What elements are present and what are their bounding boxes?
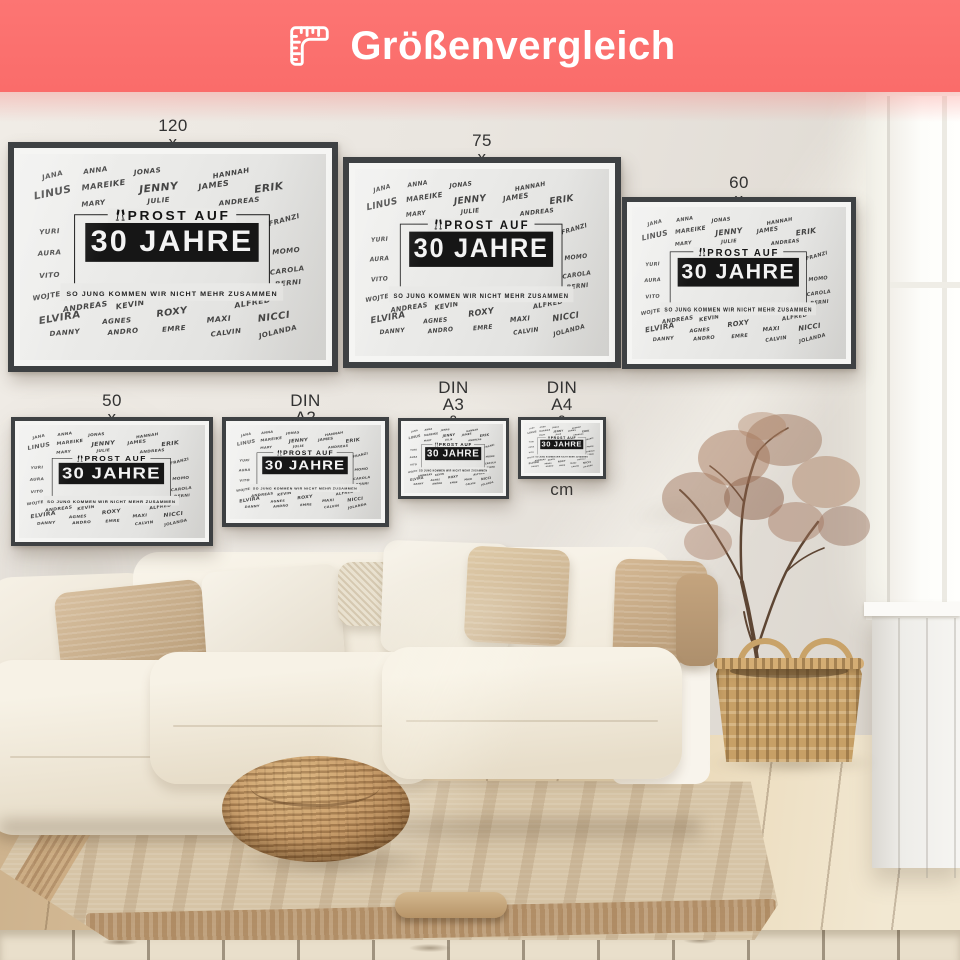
guest-name: ANDRO [428, 325, 454, 334]
poster-title: 30 JAHRE [265, 458, 345, 473]
guest-name: FRANZI [585, 437, 593, 441]
guest-name: CAROLA [586, 450, 595, 453]
guest-name: MOMO [485, 455, 494, 459]
guest-name: CAROLA [353, 475, 371, 481]
guest-name: CALVIN [210, 326, 242, 338]
guest-name: YURI [31, 465, 44, 470]
guest-name: JAMES [502, 192, 529, 204]
guest-name: BERNI [355, 482, 368, 487]
guest-name: AURA [370, 255, 390, 263]
guest-name: ANDRO [546, 465, 554, 468]
guest-name: MARY [674, 240, 691, 247]
guest-name: JONAS [88, 432, 105, 438]
guest-name: ANNA [261, 430, 274, 435]
guest-name: EMRE [731, 332, 748, 339]
guest-name: ELVIRA [370, 310, 406, 326]
guest-name: JOLANDA [258, 323, 298, 340]
guest-name: HANNAH [572, 426, 582, 429]
size-comparison-graphic: Größenvergleich [0, 0, 960, 960]
guest-name: VITO [371, 275, 389, 283]
guest-name: CAROLA [485, 461, 497, 465]
guest-name: ROXY [297, 494, 313, 501]
guest-name: AURA [410, 456, 418, 459]
guest-name: AGNES [423, 316, 448, 325]
guest-name: JANA [372, 183, 391, 194]
guest-name: DANNY [50, 327, 81, 337]
guest-name: JANA [41, 169, 64, 181]
header-reflection [0, 92, 960, 122]
guest-name: YURI [646, 261, 661, 268]
guest-name: MOMO [564, 253, 588, 263]
poster-title: 30 JAHRE [542, 440, 582, 448]
guest-name: NICCI [257, 310, 291, 325]
guest-name: YURI [529, 441, 534, 443]
guest-name: ELVIRA [529, 461, 540, 465]
guest-name: DANNY [414, 482, 424, 485]
guest-names: JANAANNAJONASHANNAHLINUSMAREIKEJENNYJAME… [19, 425, 205, 538]
guest-name: JULIE [147, 196, 170, 206]
guest-name: LINUS [408, 434, 421, 440]
guest-name: JAMES [127, 439, 147, 446]
guest-name: NICCI [347, 496, 364, 503]
guest-name: ERIK [253, 180, 284, 195]
guest-name: ALFRED [234, 295, 272, 310]
guest-name: ERIK [479, 433, 489, 438]
guest-name: MAXI [762, 325, 780, 333]
guest-name: AGNES [102, 316, 132, 326]
guest-name: JOLANDA [481, 481, 494, 487]
guest-name: AURA [239, 468, 251, 472]
guest-name: BERNI [173, 493, 190, 499]
guest-name: MAREIKE [56, 438, 83, 446]
guest-name: ANNA [83, 165, 109, 176]
guest-name: EMRE [559, 464, 565, 466]
guest-name: JANA [411, 429, 418, 433]
guest-name: JENNY [715, 226, 743, 237]
guest-names: JANAANNAJONASHANNAHLINUSMAREIKEJENNYJAME… [524, 423, 600, 473]
guest-name: JENNY [91, 439, 115, 447]
poster-title-box: 30 JAHRE [409, 232, 553, 267]
guest-name: JULIE [96, 448, 110, 453]
guest-name: LINUS [236, 438, 256, 447]
guest-names: JANAANNAJONASHANNAHLINUSMAREIKEJENNYJAME… [230, 425, 381, 519]
guest-name: DANNY [653, 335, 675, 343]
poster-frame: JANAANNAJONASHANNAHLINUSMAREIKEJENNYJAME… [11, 417, 213, 546]
guest-name: ANDREAS [62, 300, 108, 315]
poster-frame: JANAANNAJONASHANNAHLINUSMAREIKEJENNYJAME… [518, 417, 606, 479]
guest-name: FRANZI [560, 222, 588, 236]
guest-name: DANNY [531, 465, 539, 467]
guest-names: JANAANNAJONASHANNAHLINUSMAREIKEJENNYJAME… [355, 169, 609, 356]
poster-art: JANAANNAJONASHANNAHLINUSMAREIKEJENNYJAME… [20, 154, 326, 360]
guest-name: ANDREAS [328, 444, 349, 449]
guest-name: KEVIN [115, 298, 145, 311]
guest-name: HANNAH [514, 181, 546, 194]
poster-art: JANAANNAJONASHANNAHLINUSMAREIKEJENNYJAME… [524, 423, 600, 473]
guest-name: CAROLA [806, 288, 831, 297]
guest-name: MAREIKE [539, 429, 550, 433]
guest-name: DANNY [245, 504, 260, 509]
guest-name: ROXY [448, 475, 459, 480]
poster-subtitle: SO JUNG KOMMEN WIR NICHT MEHR ZUSAMMEN [47, 500, 175, 504]
guest-name: ANDRO [108, 326, 140, 336]
guest-name: AURA [528, 446, 534, 448]
guest-name: CALVIN [571, 465, 579, 468]
guest-name: LINUS [365, 195, 398, 212]
guest-name: DANNY [37, 520, 56, 526]
guest-name: LINUS [26, 441, 50, 451]
guest-name: EMRE [450, 481, 458, 484]
guest-name: JAMES [318, 436, 334, 442]
guest-name: JONAS [449, 180, 472, 189]
poster-title: 30 JAHRE [62, 464, 161, 482]
guest-name: ELVIRA [38, 310, 82, 328]
poster-heading: PROST AUF [84, 455, 147, 463]
guest-name: VITO [31, 489, 44, 494]
guest-name: ANDREAS [218, 195, 260, 207]
guest-name: ROXY [558, 460, 566, 464]
guest-name: MARY [539, 434, 545, 436]
poster-emblem: PROST AUF 30 JAHRE SO JUNG KOMMEN WIR NI… [400, 224, 563, 295]
poster-heading: PROST AUF [551, 436, 577, 440]
poster-title-box: 30 JAHRE [425, 447, 481, 460]
guest-name: ANDRO [273, 504, 289, 509]
guest-names: JANAANNAJONASHANNAHLINUSMAREIKEJENNYJAME… [404, 424, 503, 493]
guest-name: MAXI [206, 314, 231, 325]
guest-name: JAMES [568, 429, 576, 432]
guest-name: ELVIRA [30, 510, 57, 520]
poster-emblem: PROST AUF 30 JAHRE SO JUNG KOMMEN WIR NI… [52, 458, 171, 501]
guest-name: KEVIN [277, 491, 292, 497]
guest-name: ANDREAS [770, 238, 799, 247]
guest-name: ERIK [161, 439, 180, 447]
guest-name: JOLANDA [164, 518, 188, 527]
poster-frame: JANAANNAJONASHANNAHLINUSMAREIKEJENNYJAME… [622, 197, 856, 369]
guest-name: AGNES [431, 478, 441, 481]
guest-name: FRANZI [484, 443, 495, 448]
guest-name: JOLANDA [553, 322, 586, 337]
poster-frame: JANAANNAJONASHANNAHLINUSMAREIKEJENNYJAME… [222, 417, 389, 527]
poster-subtitle: SO JUNG KOMMEN WIR NICHT MEHR ZUSAMMEN [66, 291, 277, 298]
poster-subtitle: SO JUNG KOMMEN WIR NICHT MEHR ZUSAMMEN [536, 456, 588, 458]
guest-name: JANA [647, 218, 663, 227]
guest-name: MAREIKE [81, 178, 126, 193]
guest-name: NICCI [552, 311, 580, 325]
poster-art: JANAANNAJONASHANNAHLINUSMAREIKEJENNYJAME… [404, 424, 503, 493]
guest-name: CALVIN [134, 520, 153, 526]
poster-emblem: PROST AUF 30 JAHRE SO JUNG KOMMEN WIR NI… [74, 214, 270, 293]
guest-name: CAROLA [269, 264, 305, 276]
guest-name: MAXI [570, 462, 576, 465]
guest-name: MARY [56, 449, 71, 455]
poster-art: JANAANNAJONASHANNAHLINUSMAREIKEJENNYJAME… [632, 207, 846, 359]
champagne-glasses-icon [113, 208, 124, 222]
guest-name: JANA [32, 433, 46, 440]
guest-name: WOJTEK [31, 289, 66, 302]
guest-name: AURA [645, 277, 662, 284]
guest-names: JANAANNAJONASHANNAHLINUSMAREIKEJENNYJAME… [632, 207, 846, 359]
guest-name: KEVIN [434, 300, 459, 312]
page-title: Größenvergleich [350, 24, 675, 69]
poster-subtitle: SO JUNG KOMMEN WIR NICHT MEHR ZUSAMMEN [253, 488, 357, 491]
guest-name: VITO [529, 451, 534, 453]
guest-name: HANNAH [136, 432, 159, 440]
guest-name: BERNI [486, 466, 495, 469]
guest-name: MAREIKE [424, 432, 439, 437]
guest-name: MOMO [354, 467, 368, 472]
guest-name: VITO [410, 463, 417, 466]
guest-name: ERIK [345, 437, 360, 444]
champagne-glasses-icon [697, 247, 705, 257]
guest-name: ALFRED [473, 471, 485, 476]
poster-subtitle: SO JUNG KOMMEN WIR NICHT MEHR ZUSAMMEN [419, 470, 487, 472]
guest-name: ERIK [795, 226, 817, 237]
guest-name: ANDREAS [251, 491, 274, 498]
poster-title: 30 JAHRE [427, 448, 480, 459]
guest-name: YURI [240, 458, 251, 462]
guest-name: EMRE [300, 502, 312, 506]
guest-name: JONAS [711, 216, 731, 224]
guest-name: MOMO [808, 275, 828, 283]
guest-name: WOJTEK [527, 456, 536, 459]
poster-emblem: PROST AUF 30 JAHRE SO JUNG KOMMEN WIR NI… [421, 444, 484, 470]
guest-name: YURI [371, 236, 389, 244]
guest-name: MAREIKE [260, 436, 282, 443]
guest-name: JULIE [293, 444, 304, 448]
guest-name: JULIE [555, 433, 561, 435]
poster-emblem: PROST AUF 30 JAHRE SO JUNG KOMMEN WIR NI… [537, 438, 586, 457]
guest-name: FRANZI [169, 457, 189, 466]
guest-name: JOLANDA [798, 332, 826, 344]
guest-name: AURA [38, 249, 62, 258]
guest-name: ANNA [676, 215, 694, 223]
guest-name: FRANZI [267, 212, 300, 228]
guest-name: MARY [81, 198, 106, 208]
guest-name: ANDRO [432, 482, 442, 485]
guest-name: NICCI [163, 511, 184, 519]
guest-name: ROXY [468, 306, 495, 319]
guest-name: VITO [39, 271, 60, 280]
guest-name: AGNES [690, 326, 711, 333]
guest-name: MAREIKE [674, 225, 706, 236]
poster-frame: JANAANNAJONASHANNAHLINUSMAREIKEJENNYJAME… [343, 157, 621, 368]
guest-name: JENNY [138, 180, 178, 195]
poster-emblem: PROST AUF 30 JAHRE SO JUNG KOMMEN WIR NI… [257, 452, 354, 488]
guest-name: WOJTEK [365, 292, 394, 304]
guest-name: ANNA [407, 179, 428, 189]
poster-emblem: PROST AUF 30 JAHRE SO JUNG KOMMEN WIR NI… [670, 251, 807, 309]
room-photo: 120 x 80 cm & DIN A0 JANAANNAJONASHANNAH… [0, 92, 960, 960]
guest-name: WOJTEK [236, 487, 253, 493]
header-banner: Größenvergleich [0, 0, 960, 92]
guest-name: JONAS [133, 166, 161, 176]
poster-title: 30 JAHRE [414, 234, 549, 264]
guest-name: YURI [39, 227, 60, 236]
guest-name: JAMES [461, 432, 471, 436]
guest-name: JULIE [460, 207, 479, 216]
posters-layer: 120 x 80 cm & DIN A0 JANAANNAJONASHANNAH… [0, 92, 960, 960]
champagne-glasses-icon [433, 218, 442, 230]
poster-heading: PROST AUF [128, 208, 231, 223]
guest-name: NICCI [583, 461, 591, 465]
poster-art: JANAANNAJONASHANNAHLINUSMAREIKEJENNYJAME… [230, 425, 381, 519]
guest-name: ANDREAS [45, 505, 73, 513]
guest-name: ROXY [727, 319, 750, 330]
guest-name: KEVIN [548, 458, 555, 461]
poster-title-box: 30 JAHRE [678, 258, 799, 287]
guest-name: JAMES [756, 226, 778, 235]
guest-name: MAXI [132, 513, 147, 519]
guest-name: BERNI [566, 282, 589, 291]
guest-name: ANNA [540, 426, 546, 429]
guest-name: JAMES [198, 179, 230, 192]
guest-name: JENNY [553, 429, 563, 433]
guest-name: EMRE [105, 518, 120, 523]
poster-heading: PROST AUF [444, 218, 529, 231]
poster-title-box: 30 JAHRE [85, 223, 258, 262]
poster-frame: JANAANNAJONASHANNAHLINUSMAREIKEJENNYJAME… [398, 418, 509, 499]
guest-name: HANNAH [766, 216, 793, 226]
guest-name: CAROLA [562, 269, 592, 280]
guest-name: FRANZI [352, 452, 368, 459]
guest-name: JONAS [286, 431, 300, 436]
guest-name: ELVIRA [410, 476, 424, 482]
guest-name: JONAS [552, 426, 559, 429]
poster-title: 30 JAHRE [91, 226, 254, 259]
guest-name: HANNAH [466, 428, 478, 433]
guest-name: AGNES [271, 499, 286, 503]
guest-name: MAREIKE [405, 191, 443, 204]
guest-name: ROXY [102, 508, 122, 516]
guest-name: ANDREAS [468, 438, 482, 442]
guest-name: EMRE [161, 324, 186, 334]
poster-subtitle: SO JUNG KOMMEN WIR NICHT MEHR ZUSAMMEN [664, 308, 812, 313]
guest-name: CAROLA [170, 485, 192, 492]
guest-name: ALFRED [782, 311, 808, 322]
guest-name: MOMO [586, 445, 593, 448]
guest-name: EMRE [472, 323, 492, 332]
guest-name: ANDRO [72, 519, 91, 525]
poster-art: JANAANNAJONASHANNAHLINUSMAREIKEJENNYJAME… [355, 169, 609, 356]
guest-name: ANDREAS [573, 433, 583, 436]
guest-name: CALVIN [324, 504, 340, 509]
guest-name: ALFRED [577, 457, 586, 461]
guest-name: ERIK [549, 192, 575, 206]
guest-name: ANDREAS [534, 458, 545, 462]
guest-name: MAXI [464, 478, 472, 482]
champagne-glasses-icon [76, 455, 83, 462]
guest-name: JENNY [453, 192, 486, 206]
guest-name: ANDREAS [519, 207, 554, 218]
guest-name: DANNY [380, 326, 406, 335]
poster-frame: JANAANNAJONASHANNAHLINUSMAREIKEJENNYJAME… [8, 142, 338, 372]
guest-name: FRANZI [805, 250, 828, 262]
guest-name: CALVIN [465, 482, 475, 486]
guest-name: ANNA [424, 428, 432, 432]
guest-name: JENNY [442, 433, 455, 438]
guest-name: ANDREAS [390, 301, 428, 314]
guest-name: LINUS [641, 228, 669, 242]
guest-names: JANAANNAJONASHANNAHLINUSMAREIKEJENNYJAME… [20, 154, 326, 360]
guest-name: YURI [410, 449, 417, 452]
guest-name: AURA [30, 477, 45, 482]
guest-name: LINUS [527, 430, 537, 435]
guest-name: MOMO [172, 476, 189, 482]
guest-name: JENNY [288, 437, 308, 444]
guest-name: JANA [529, 427, 535, 430]
guest-name: BERNI [810, 298, 829, 306]
guest-name: HANNAH [325, 431, 344, 437]
guest-name: LINUS [32, 183, 72, 202]
guest-name: JOLANDA [583, 464, 593, 468]
guest-name: MAXI [322, 498, 334, 503]
guest-name: KEVIN [435, 472, 445, 476]
poster-title-box: 30 JAHRE [59, 463, 164, 484]
guest-name: NICCI [481, 476, 492, 481]
guest-name: JULIE [721, 238, 737, 245]
guest-name: ELVIRA [239, 496, 261, 504]
guest-name: ALFRED [533, 297, 564, 310]
guest-name: JANA [240, 432, 251, 438]
guest-name: BERNI [587, 453, 594, 456]
guest-name: ROXY [156, 305, 189, 320]
guest-name: BERNI [274, 278, 301, 288]
champagne-glasses-icon [434, 442, 438, 447]
poster-subtitle: SO JUNG KOMMEN WIR NICHT MEHR ZUSAMMEN [393, 293, 568, 299]
poster-title: 30 JAHRE [681, 260, 795, 284]
poster-art: JANAANNAJONASHANNAHLINUSMAREIKEJENNYJAME… [19, 425, 205, 538]
guest-name: MARY [260, 445, 272, 450]
ruler-corner-icon [284, 21, 334, 71]
guest-name: CALVIN [512, 326, 538, 337]
guest-name: AGNES [69, 514, 87, 519]
guest-name: ALFRED [336, 490, 355, 497]
guest-name: ELVIRA [645, 322, 676, 335]
guest-name: MAXI [509, 314, 530, 324]
guest-name: WOJTEK [26, 499, 47, 506]
guest-name: ANDREAS [139, 448, 165, 454]
guest-name: AGNES [544, 462, 551, 464]
guest-name: CALVIN [765, 334, 787, 343]
guest-name: WOJTEK [408, 469, 419, 473]
guest-name: MOMO [272, 246, 301, 257]
guest-name: MARY [405, 209, 426, 218]
poster-heading: PROST AUF [439, 442, 472, 447]
poster-title-box: 30 JAHRE [262, 456, 348, 474]
guest-name: ANDRO [693, 334, 715, 342]
guest-name: VITO [646, 293, 661, 300]
guest-name: ANNA [57, 431, 73, 437]
guest-name: KEVIN [699, 313, 720, 323]
guest-name: ANDREAS [662, 314, 694, 325]
poster-heading: PROST AUF [283, 450, 334, 457]
guest-name: VITO [240, 478, 251, 482]
poster-heading: PROST AUF [707, 247, 779, 258]
guest-name: NICCI [798, 322, 822, 333]
guest-name: WOJTEK [640, 307, 665, 317]
guest-name: ALFRED [149, 503, 172, 511]
guest-name: JONAS [441, 428, 450, 432]
guest-name: HANNAH [212, 167, 250, 181]
guest-name: ANDREAS [418, 473, 433, 478]
guest-name: KEVIN [77, 504, 95, 511]
champagne-glasses-icon [276, 450, 282, 456]
poster-title-box: 30 JAHRE [540, 440, 583, 449]
champagne-glasses-icon [547, 436, 550, 439]
guest-name: JOLANDA [347, 502, 367, 510]
guest-name: MARY [424, 439, 432, 442]
guest-name: ERIK [582, 429, 590, 433]
